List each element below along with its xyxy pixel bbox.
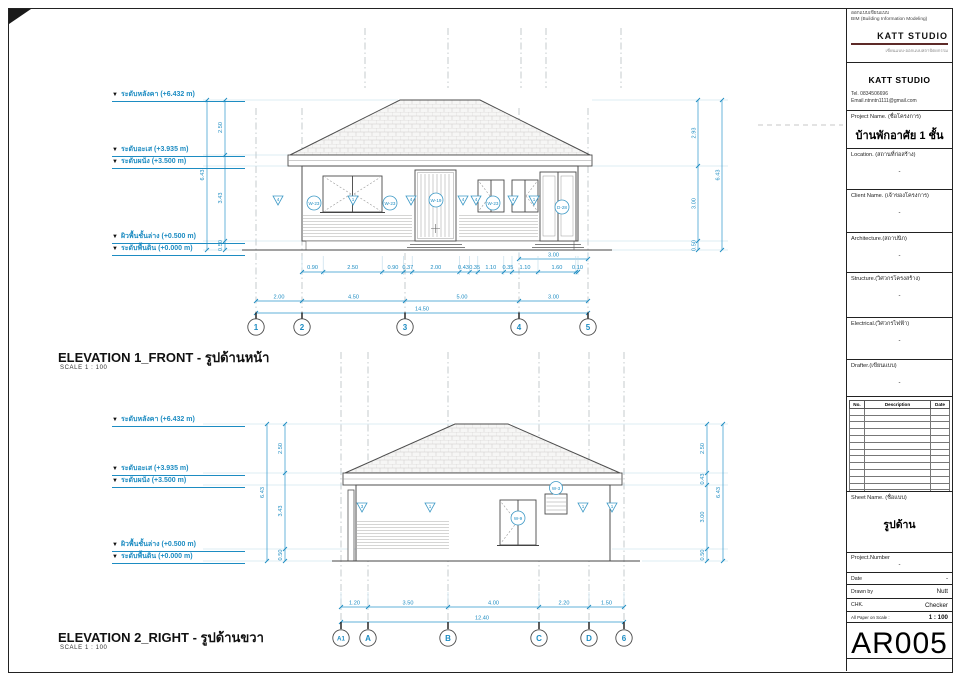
drafter-label: Drafter.(เขียนแบบ)	[851, 362, 948, 370]
svg-text:2.20: 2.20	[559, 600, 570, 606]
svg-text:1.20: 1.20	[349, 600, 360, 606]
svg-text:W-19: W-19	[431, 198, 442, 203]
chk-value: Checker	[925, 602, 948, 609]
rev-row	[850, 442, 950, 449]
svg-text:12.40: 12.40	[475, 615, 489, 621]
svg-text:0.50: 0.50	[700, 550, 706, 561]
svg-text:0.35: 0.35	[502, 265, 513, 271]
svg-text:6.43: 6.43	[260, 487, 266, 498]
svg-text:A1: A1	[337, 635, 345, 642]
elevation1-upper-dim: 3.00	[517, 252, 590, 262]
svg-text:3.00: 3.00	[548, 252, 559, 258]
svg-text:W-23: W-23	[488, 201, 499, 206]
svg-text:2.50: 2.50	[347, 265, 358, 271]
svg-text:2.50: 2.50	[278, 443, 284, 454]
rev-row	[850, 483, 950, 490]
svg-text:2.50: 2.50	[700, 443, 706, 454]
client-value: -	[851, 210, 948, 216]
electrical-section: Electrical.(วิศวกรไฟฟ้า) -	[847, 318, 952, 360]
slat-cladding-left	[303, 213, 412, 238]
architecture-section: Architecture.(สถาปนิก) -	[847, 233, 952, 273]
elevation-drawing-canvas: 4 W-23 1 W-23 4 W-19 4 4 W-23 4 1 D-28	[8, 8, 846, 671]
elevation2-drawing: 3 1 W-9 1 1 W-3 1.20 3.50 4.00 2.20 1.50…	[203, 352, 728, 646]
svg-text:0.90: 0.90	[307, 265, 318, 271]
slat-cladding	[357, 520, 449, 549]
structure-value: -	[851, 293, 948, 299]
svg-text:B: B	[445, 634, 451, 643]
title-block: ออกแบบเขียนแบบ BIM (Building Information…	[846, 9, 952, 671]
date-value: -	[946, 575, 948, 582]
level-marker: ระดับผนัง (+3.500 m)	[112, 475, 245, 488]
scale-value: 1 : 100	[929, 614, 948, 621]
structure-label: Structure.(วิศวกรโครงสร้าง)	[851, 275, 948, 283]
sheet-name-value: รูปด้าน	[851, 516, 948, 533]
sheet-name-label: Sheet Name. (ชื่อแบบ)	[851, 494, 948, 502]
hip-roof-right	[345, 424, 620, 473]
svg-text:6.43: 6.43	[716, 170, 722, 181]
client-label: Client Name. (เจ้าของโครงการ)	[851, 192, 948, 200]
svg-text:4: 4	[517, 323, 522, 332]
company-section: KATT STUDIO Tel. 0834506696 Email.ntnntn…	[847, 63, 952, 111]
rev-row	[850, 469, 950, 476]
level-marker: ระดับหลังคา (+6.432 m)	[112, 414, 245, 427]
rev-row	[850, 436, 950, 443]
svg-text:0.10: 0.10	[572, 265, 583, 271]
window-w23-a	[320, 176, 385, 213]
svg-text:1: 1	[533, 197, 536, 202]
svg-text:0.37: 0.37	[402, 265, 413, 271]
project-number-value: -	[851, 562, 948, 568]
slat-cladding-right	[459, 213, 538, 238]
plinth	[306, 241, 574, 250]
project-number-section: Project.Number -	[847, 553, 952, 573]
brand-tagline: เขียนแบบ-ออกแบบสถาปัตยกรรม	[851, 47, 948, 54]
electrical-label: Electrical.(วิศวกรไฟฟ้า)	[851, 320, 948, 328]
company-name: KATT STUDIO	[851, 75, 948, 85]
window-tag: W-19	[429, 193, 443, 207]
svg-text:0.50: 0.50	[278, 550, 284, 561]
svg-text:1.10: 1.10	[485, 265, 496, 271]
svg-text:4: 4	[462, 197, 465, 202]
date-label: Date	[851, 576, 862, 582]
rev-col-date: Date	[931, 400, 950, 408]
svg-text:2.93: 2.93	[692, 128, 698, 139]
rev-row	[850, 429, 950, 436]
structure-section: Structure.(วิศวกรโครงสร้าง) -	[847, 273, 952, 318]
company-tel: Tel. 0834506696	[851, 91, 948, 99]
drawn-by-value: Nutt	[937, 588, 948, 595]
svg-text:3.00: 3.00	[548, 294, 559, 300]
svg-text:4: 4	[512, 197, 515, 202]
svg-text:3.43: 3.43	[278, 506, 284, 517]
rev-row	[850, 449, 950, 456]
vent-tag: W-3	[550, 482, 563, 495]
rev-row	[850, 456, 950, 463]
svg-text:3: 3	[403, 323, 408, 332]
svg-text:W-9: W-9	[514, 516, 523, 521]
svg-text:1.50: 1.50	[601, 600, 612, 606]
sheet-number: AR005	[851, 627, 948, 659]
revision-table-section: No. Description Date	[847, 397, 952, 492]
elevation1-scale: SCALE 1 : 100	[60, 365, 108, 371]
svg-text:0.43: 0.43	[700, 474, 706, 485]
architecture-value: -	[851, 253, 948, 259]
svg-text:1: 1	[611, 504, 614, 509]
svg-text:14.50: 14.50	[415, 306, 429, 312]
rev-row	[850, 415, 950, 422]
rev-row	[850, 408, 950, 415]
project-number-label: Project.Number	[851, 555, 948, 561]
finish-tag: 4	[273, 196, 283, 205]
elevation2-right-dims: 2.50 0.43 3.00 0.50 6.43	[700, 422, 725, 563]
svg-text:1: 1	[352, 197, 355, 202]
top-grid-dashes	[365, 28, 621, 88]
svg-text:4.00: 4.00	[488, 600, 499, 606]
svg-text:2.50: 2.50	[218, 122, 224, 133]
svg-text:1.60: 1.60	[551, 265, 562, 271]
svg-text:4: 4	[410, 197, 413, 202]
svg-text:6: 6	[622, 634, 627, 643]
svg-text:5: 5	[586, 323, 591, 332]
level-marker: ระดับพื้นดิน (+0.000 m)	[112, 551, 245, 564]
company-email: Email.ntnntn1111@gmail.com	[851, 98, 948, 106]
elevation1-right-dims: 2.93 3.00 0.50 6.43	[692, 98, 725, 252]
svg-text:2: 2	[300, 323, 305, 332]
elevation2-scale: SCALE 1 : 100	[60, 645, 108, 651]
scale-section: All Paper on Scale : 1 : 100	[847, 612, 952, 623]
svg-text:0.43: 0.43	[458, 265, 469, 271]
svg-text:3.00: 3.00	[692, 198, 698, 209]
logo-section: ออกแบบเขียนแบบ BIM (Building Information…	[847, 9, 952, 63]
window-tag: W-23	[383, 196, 397, 210]
level-marker: ระดับหลังคา (+6.432 m)	[112, 89, 245, 102]
electrical-value: -	[851, 338, 948, 344]
architecture-label: Architecture.(สถาปนิก)	[851, 235, 948, 243]
brand-logo: KATT STUDIO	[851, 31, 948, 45]
svg-text:W-23: W-23	[385, 201, 396, 206]
sheet-name-section: Sheet Name. (ชื่อแบบ) รูปด้าน	[847, 492, 952, 554]
titleblock-footer	[847, 659, 952, 671]
svg-text:2.00: 2.00	[430, 265, 441, 271]
svg-text:D-28: D-28	[557, 205, 567, 210]
drawn-by-section: Drawn by Nutt	[847, 585, 952, 599]
location-section: Location. (สถานที่ก่อสร้าง) -	[847, 149, 952, 191]
elevation1-grid-dims: 2.00 4.50 5.00 3.00 14.50	[254, 294, 590, 315]
elevation1-grid-bubbles: 1 2 3 4 5	[248, 313, 596, 335]
svg-text:C: C	[536, 634, 542, 643]
drawing-sheet: 4 W-23 1 W-23 4 W-19 4 4 W-23 4 1 D-28	[0, 0, 960, 681]
client-section: Client Name. (เจ้าของโครงการ) -	[847, 190, 952, 233]
svg-text:6.43: 6.43	[716, 487, 722, 498]
date-section: Date -	[847, 573, 952, 585]
svg-text:3: 3	[361, 504, 364, 509]
rev-row	[850, 476, 950, 483]
elevation2-grid-dims: 1.20 3.50 4.00 2.20 1.50 12.40	[339, 592, 626, 624]
rev-col-no: No.	[850, 400, 865, 408]
svg-text:6.43: 6.43	[200, 170, 206, 181]
elevation2-grid-bubbles: A1 A B C D 6	[333, 622, 632, 646]
project-name-section: Project Name. (ชื่อโครงการ) บ้านพักอาศัย…	[847, 111, 952, 149]
svg-text:2.00: 2.00	[274, 294, 285, 300]
svg-text:1: 1	[254, 323, 259, 332]
sheet-corner-mark	[9, 9, 31, 24]
svg-text:0.90: 0.90	[387, 265, 398, 271]
svg-text:1: 1	[582, 504, 585, 509]
svg-text:1.10: 1.10	[520, 265, 531, 271]
svg-text:A: A	[365, 634, 371, 643]
chk-label: CHK.	[851, 602, 863, 608]
elevation2-left-dims: 2.50 3.43 0.50 6.43	[260, 422, 287, 563]
hip-roof-front	[290, 100, 590, 155]
rev-row	[850, 422, 950, 429]
rev-row	[850, 463, 950, 470]
logo-small-line2: BIM (Building Information Modeling)	[851, 17, 948, 23]
vent-w3	[545, 494, 567, 514]
svg-text:3.00: 3.00	[700, 512, 706, 523]
rev-col-description: Description	[865, 400, 931, 408]
svg-text:3.50: 3.50	[403, 600, 414, 606]
svg-text:0.35: 0.35	[469, 265, 480, 271]
svg-text:0.50: 0.50	[692, 240, 698, 251]
project-name-value: บ้านพักอาศัย 1 ชั้น	[851, 126, 948, 144]
level-marker: ระดับผนัง (+3.500 m)	[112, 156, 245, 169]
window-tag: W-23	[307, 196, 321, 210]
porch-post	[348, 490, 354, 561]
svg-text:3.43: 3.43	[218, 193, 224, 204]
svg-text:1: 1	[429, 504, 432, 509]
scale-label: All Paper on Scale :	[851, 615, 890, 620]
window-tag: W-23	[486, 196, 500, 210]
door-tag: D-28	[555, 200, 569, 214]
svg-text:W-3: W-3	[552, 486, 561, 491]
window-tag: W-9	[511, 511, 525, 525]
chk-section: CHK. Checker	[847, 599, 952, 612]
svg-text:W-23: W-23	[309, 201, 320, 206]
level-marker: ระดับพื้นดิน (+0.000 m)	[112, 243, 245, 256]
sheet-number-section: AR005	[847, 623, 952, 659]
elevation1-left-dims: 2.50 3.43 0.50 6.43	[200, 98, 227, 252]
drafter-section: Drafter.(เขียนแบบ) -	[847, 360, 952, 397]
svg-text:4: 4	[277, 197, 280, 202]
svg-text:4.50: 4.50	[348, 294, 359, 300]
elevation1-drawing: 4 W-23 1 W-23 4 W-19 4 4 W-23 4 1 D-28	[200, 98, 843, 335]
svg-text:4: 4	[475, 197, 478, 202]
svg-text:D: D	[586, 634, 592, 643]
revision-table: No. Description Date	[849, 400, 950, 492]
svg-text:5.00: 5.00	[457, 294, 468, 300]
drawn-by-label: Drawn by	[851, 589, 873, 595]
location-value: -	[851, 169, 948, 175]
location-label: Location. (สถานที่ก่อสร้าง)	[851, 151, 948, 159]
drafter-value: -	[851, 380, 948, 386]
project-name-label: Project Name. (ชื่อโครงการ)	[851, 113, 948, 121]
